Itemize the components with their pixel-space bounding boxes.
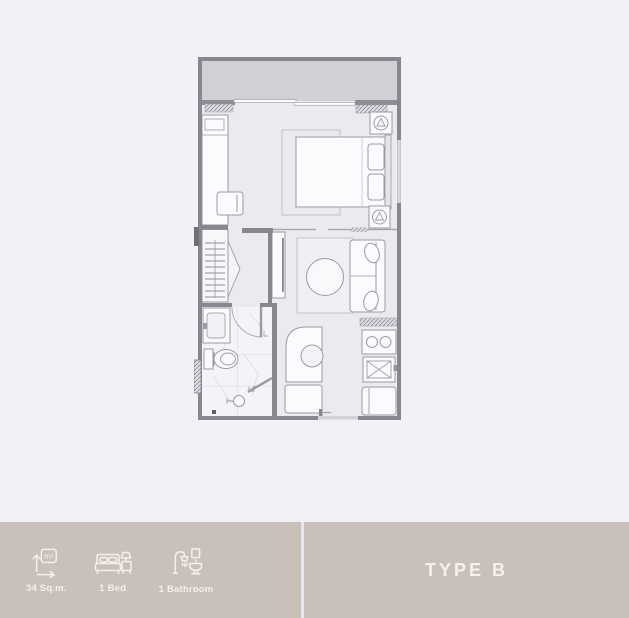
- stat-bathroom: 1 Bathroom: [159, 546, 214, 595]
- chair: [217, 192, 243, 215]
- door-leaf: [260, 307, 262, 337]
- fridge: [362, 387, 396, 415]
- floor-plan-drawing: [194, 55, 404, 423]
- floor-drain: [212, 410, 216, 414]
- bathroom-icon: [168, 546, 204, 579]
- ac-unit-icon: [370, 112, 392, 134]
- stove: [362, 330, 396, 354]
- toilet: [204, 349, 238, 369]
- backsplash: [360, 318, 397, 326]
- page: m² 34 Sq.m. 1 Bed: [0, 0, 629, 618]
- stat-area-label: 34 Sq.m.: [26, 583, 67, 594]
- bathroom: [202, 307, 272, 416]
- headboard: [385, 135, 391, 209]
- curtain-box-left: [205, 104, 233, 112]
- basin: [301, 345, 323, 367]
- cabinet: [285, 385, 322, 413]
- bed: [296, 135, 391, 209]
- vanity-sink: [203, 308, 230, 343]
- pillow: [368, 174, 384, 200]
- bed-icon: [93, 547, 133, 578]
- shower-drain: [234, 396, 245, 407]
- round-table: [307, 259, 344, 296]
- kitchen-peninsula: [286, 327, 323, 382]
- svg-text:m²: m²: [45, 552, 55, 561]
- window: [397, 140, 401, 203]
- area-icon: m²: [31, 546, 61, 578]
- stat-bathroom-label: 1 Bathroom: [159, 584, 214, 595]
- curtain-box: [350, 228, 367, 233]
- info-bar: m² 34 Sq.m. 1 Bed: [0, 522, 629, 618]
- tap: [394, 365, 398, 371]
- stat-bed: 1 Bed: [93, 547, 133, 594]
- ac-unit-icon: [369, 206, 390, 228]
- sofa: [350, 240, 385, 312]
- balcony: [202, 61, 397, 105]
- pipe-shaft: [194, 360, 201, 393]
- floor-plan: [194, 55, 404, 423]
- stat-bed-label: 1 Bed: [99, 583, 126, 594]
- pillow: [368, 144, 384, 170]
- partition-line: [273, 229, 316, 230]
- stat-area: m² 34 Sq.m.: [26, 546, 67, 594]
- unit-type-panel: TYPE B: [304, 522, 629, 618]
- electrical-panel: [194, 227, 199, 246]
- kitchen-sink: [363, 357, 397, 382]
- tv: [282, 238, 284, 292]
- unit-stats: m² 34 Sq.m. 1 Bed: [0, 522, 301, 618]
- tv-console: [272, 232, 285, 298]
- unit-type-label: TYPE B: [425, 560, 508, 581]
